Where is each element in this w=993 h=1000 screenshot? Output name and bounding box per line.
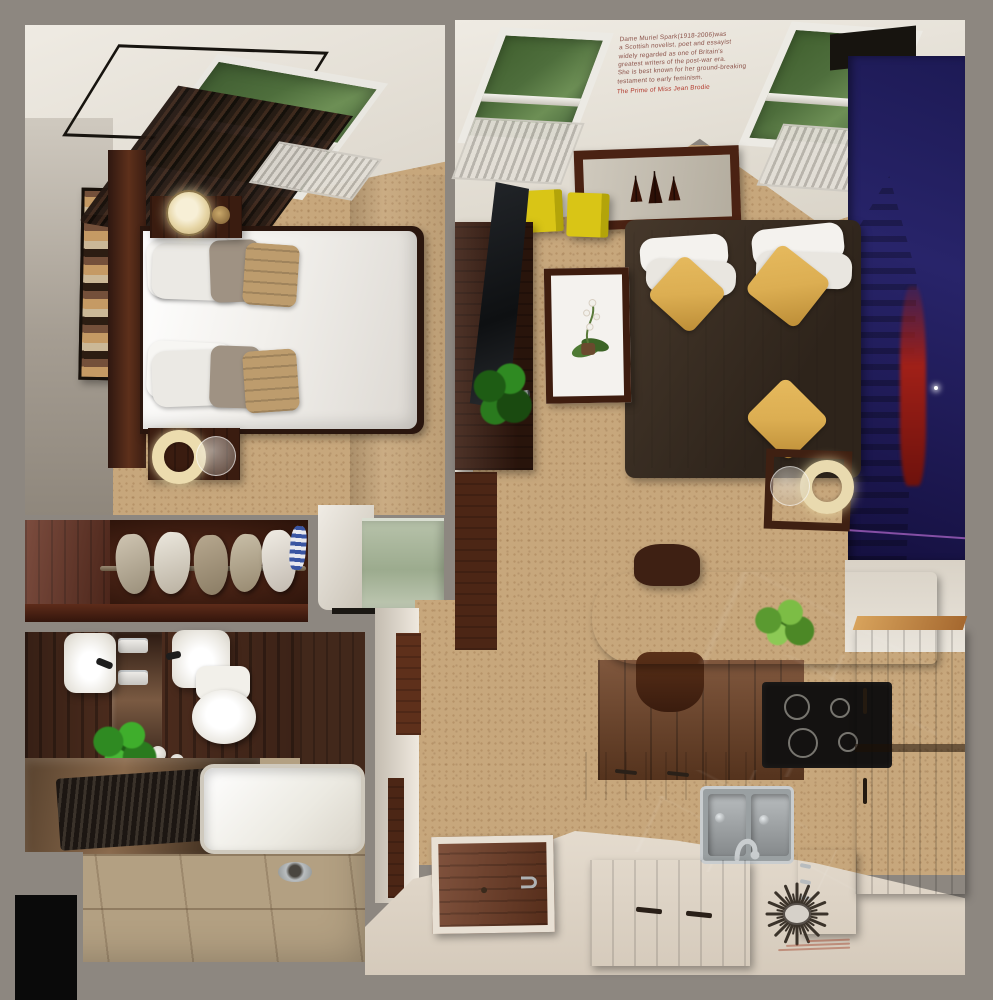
side-table-glass-orb xyxy=(770,466,810,506)
entry-door xyxy=(431,835,555,934)
nightstand-lamp-top xyxy=(166,190,212,236)
floor-caption-stroke xyxy=(808,939,850,942)
closet-shelf-front xyxy=(25,604,308,622)
cabinet-handle xyxy=(863,778,867,804)
cabinet-handle xyxy=(615,769,637,775)
wall-mural-night-scene xyxy=(848,56,965,562)
utensil-hook xyxy=(800,863,812,869)
coffee-table xyxy=(544,267,631,403)
corridor-door-panel-low xyxy=(388,778,404,898)
bed-pillow-burlap xyxy=(242,348,300,414)
entry-door-handle xyxy=(521,876,537,888)
cooktop-burner xyxy=(830,698,850,718)
wall-quote: Dame Muriel Spark(1918-2006)was a Scotti… xyxy=(617,27,788,96)
sink-knob xyxy=(759,815,769,825)
bathtub xyxy=(200,764,365,854)
living-radiator-left xyxy=(451,117,584,185)
cabinet-handle xyxy=(636,907,662,915)
alcove-glass-panel xyxy=(362,518,444,610)
nightstand-glass-orb xyxy=(196,436,236,476)
entry-sideboard-oak xyxy=(590,860,750,966)
cooktop-burner xyxy=(784,694,810,720)
nightstand-decor-brass xyxy=(212,206,230,224)
cabinet-handle xyxy=(686,911,712,919)
bathroom-towel-hook xyxy=(118,672,148,685)
orchid-plant xyxy=(552,286,624,379)
entry-door-peephole xyxy=(481,887,487,893)
console-decor-sailboats xyxy=(621,166,692,208)
corridor-door-panel xyxy=(396,633,421,735)
bed-pillow-burlap xyxy=(242,242,300,308)
corridor-floor-carpet xyxy=(415,600,580,865)
shower-drain xyxy=(278,862,312,882)
desk-chair-back xyxy=(634,544,700,586)
bathroom-towel-hook xyxy=(118,640,148,653)
skylight-glazing-bar xyxy=(481,93,581,106)
mural-star-light xyxy=(934,386,938,390)
mural-red-tower xyxy=(900,286,926,486)
cabinet-handle xyxy=(863,688,867,714)
kitchen-tall-cabinets-oak xyxy=(855,628,965,894)
corner-black-block xyxy=(15,895,77,1000)
cooktop-burner xyxy=(788,728,818,758)
toilet-bowl xyxy=(192,690,256,744)
kitchen-sink xyxy=(700,786,794,864)
apartment-floorplan-render: Dame Muriel Spark(1918-2006)was a Scotti… xyxy=(0,0,993,1000)
tall-cabinet-divider xyxy=(855,744,965,752)
hall-cabinet-low xyxy=(455,472,497,650)
cabinet-handle xyxy=(667,771,689,777)
sink-knob xyxy=(715,813,725,823)
ottoman-yellow xyxy=(566,192,610,237)
tall-cabinet-top-face xyxy=(853,616,968,630)
